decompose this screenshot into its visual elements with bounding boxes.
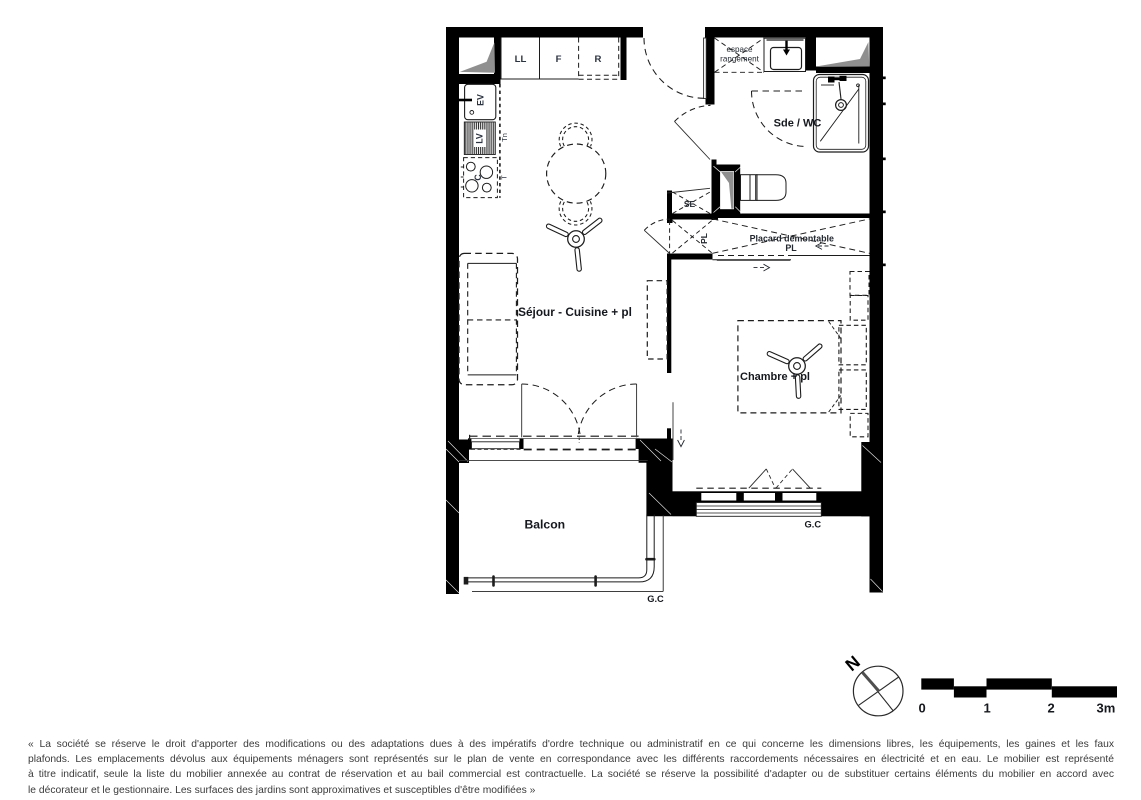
svg-text:SE: SE	[684, 199, 696, 209]
svg-text:R: R	[595, 54, 602, 65]
svg-text:EV: EV	[476, 94, 486, 106]
svg-text:0: 0	[919, 701, 926, 716]
svg-text:T: T	[499, 175, 508, 180]
svg-text:N: N	[841, 652, 864, 675]
svg-text:2: 2	[1048, 701, 1055, 716]
svg-text:G.C: G.C	[805, 519, 822, 529]
svg-text:C: C	[473, 174, 483, 181]
svg-text:Séjour - Cuisine + pl: Séjour - Cuisine + pl	[518, 305, 632, 319]
svg-text:Chambre + pl: Chambre + pl	[740, 371, 810, 383]
svg-text:espace: espace	[726, 45, 753, 54]
svg-text:1: 1	[984, 701, 991, 716]
svg-text:Placard démontable: Placard démontable	[750, 233, 834, 243]
svg-text:3m: 3m	[1097, 701, 1116, 716]
svg-text:F: F	[556, 54, 562, 65]
svg-text:LL: LL	[515, 54, 527, 65]
svg-text:PL: PL	[699, 233, 709, 244]
svg-text:Balcon: Balcon	[524, 517, 565, 531]
svg-text:Sde / WC: Sde / WC	[774, 118, 822, 130]
svg-text:LV: LV	[475, 133, 485, 144]
svg-text:Tn: Tn	[500, 133, 509, 142]
svg-text:rangement: rangement	[720, 55, 759, 64]
svg-text:G.C: G.C	[647, 594, 664, 604]
svg-text:PL: PL	[785, 243, 797, 253]
